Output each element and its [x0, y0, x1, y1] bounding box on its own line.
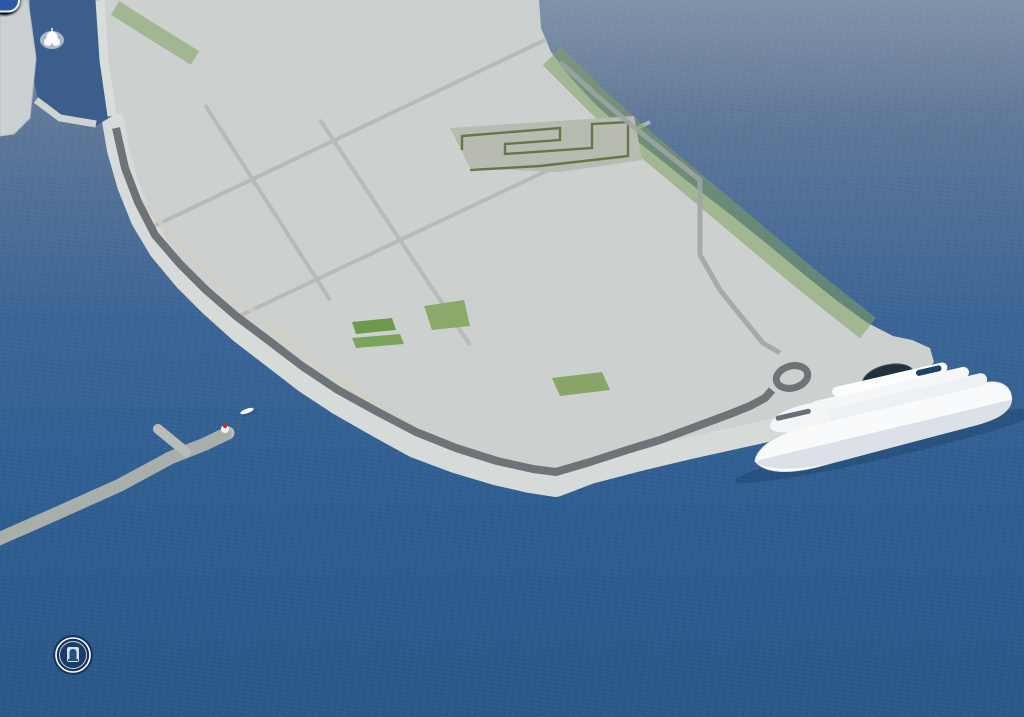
marker-number-badge	[0, 0, 20, 13]
marina-basin	[28, 0, 112, 126]
bell-icon	[70, 649, 77, 659]
harbor-map-scene	[0, 0, 1024, 717]
marina-pier	[0, 0, 36, 136]
port-authority-emblem	[52, 634, 94, 676]
zadar-port-map	[0, 0, 1024, 717]
berth-marker-vez-1d[interactable]	[0, 0, 20, 13]
